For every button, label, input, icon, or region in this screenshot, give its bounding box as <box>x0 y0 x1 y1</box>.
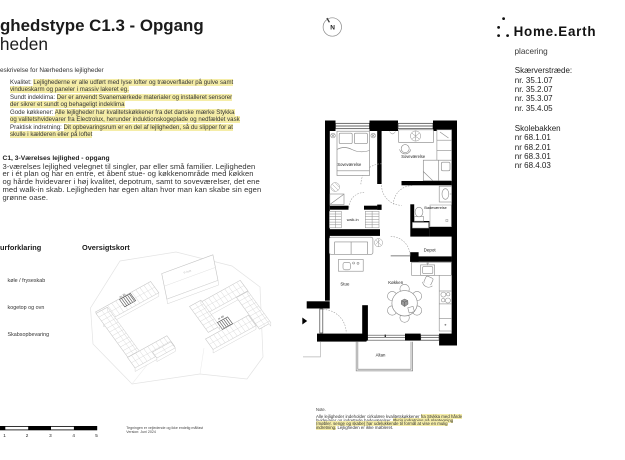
svg-text:Altan: Altan <box>376 352 386 357</box>
svg-text:Soveværelse: Soveværelse <box>401 154 426 159</box>
svg-text:N: N <box>330 25 335 32</box>
svg-text:Stue: Stue <box>340 282 350 287</box>
svg-text:Depot: Depot <box>424 247 437 252</box>
svg-text:Badeværelse: Badeværelse <box>424 206 446 210</box>
svg-text:Soveværelse: Soveværelse <box>337 162 362 167</box>
svg-text:walk-in: walk-in <box>347 218 359 222</box>
svg-text:Køkken: Køkken <box>388 280 403 285</box>
